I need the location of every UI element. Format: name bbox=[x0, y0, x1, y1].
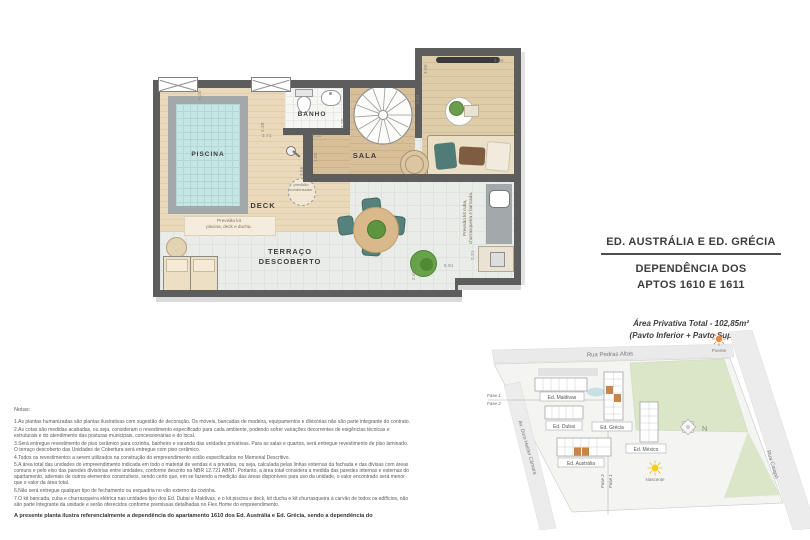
pillow-cream bbox=[485, 141, 511, 172]
phase-label: Fase 2 bbox=[600, 474, 605, 488]
building-dubai: Ed. Dubai bbox=[545, 406, 583, 430]
building-label: Ed. Maldivas bbox=[548, 395, 577, 401]
plan-shadow bbox=[521, 52, 525, 285]
compass-north: N bbox=[702, 424, 707, 433]
note-item: 6.Não será entregue qualquer tipo de fec… bbox=[14, 489, 412, 495]
plan-shadow bbox=[458, 285, 521, 290]
building-label: Ed. Austrália bbox=[567, 461, 595, 467]
dimension: 2.31 bbox=[470, 242, 475, 260]
compass-icon bbox=[680, 419, 696, 435]
notes-section: Notas: 1.As plantas humanizadas são plan… bbox=[14, 407, 412, 519]
magazine bbox=[464, 105, 479, 117]
pillow-teal bbox=[434, 142, 458, 170]
label-piscina: PISCINA bbox=[176, 151, 240, 160]
building-title: ED. AUSTRÁLIA E ED. GRÉCIA bbox=[601, 236, 781, 255]
phase-label: Fase 2 bbox=[487, 401, 501, 406]
dimension: 1.05 bbox=[313, 144, 318, 162]
building-label: Ed. México bbox=[634, 447, 659, 453]
lounger bbox=[163, 256, 191, 291]
site-plan: Rua Pedras Altas Av. Dom Helder Câmara R… bbox=[480, 330, 810, 530]
lounger-cushion bbox=[166, 259, 188, 272]
label-banho: BANHO bbox=[287, 111, 337, 120]
sun-west-icon bbox=[712, 332, 726, 346]
spiral-stair bbox=[352, 84, 414, 146]
unit-numbers: APTOS 1610 E 1611 bbox=[585, 279, 797, 291]
unit-subtitle: DEPENDÊNCIA DOS bbox=[585, 263, 797, 275]
label-terraco: TERRAÇO DESCOBERTO bbox=[222, 247, 358, 267]
private-area: Área Privativa Total - 102,85m² bbox=[585, 319, 797, 328]
lounger bbox=[190, 256, 218, 291]
dimension: 3.86 bbox=[299, 158, 304, 176]
phase-label: Fase 1 bbox=[487, 393, 501, 398]
sink bbox=[489, 190, 510, 208]
wall bbox=[303, 174, 423, 182]
note-item: 2.As cotas são medidas acabadas, ou seja… bbox=[14, 428, 412, 440]
dimension: 2.43 bbox=[415, 86, 420, 104]
dimension: 6.91 bbox=[444, 263, 454, 268]
shrub-detail bbox=[420, 258, 433, 271]
faucet bbox=[329, 92, 332, 95]
building-label: Ed. Grécia bbox=[600, 425, 624, 431]
curtain bbox=[436, 57, 500, 63]
notes-footer: A presente planta ilustra referencialmen… bbox=[14, 513, 412, 519]
dimension: 2.66 bbox=[411, 264, 416, 280]
wall bbox=[153, 80, 160, 297]
wall bbox=[415, 174, 521, 182]
dimension: 2.30 bbox=[260, 112, 265, 132]
sun-east-label: Nascente bbox=[645, 477, 665, 482]
lounge-side-table bbox=[166, 237, 187, 258]
sun-east-icon bbox=[648, 461, 663, 476]
floor-plan: previsão condensador Previsão kit piscin… bbox=[0, 0, 540, 340]
wall bbox=[514, 48, 521, 285]
wall bbox=[458, 278, 520, 285]
window bbox=[251, 77, 291, 92]
title-block: ED. AUSTRÁLIA E ED. GRÉCIA DEPENDÊNCIA D… bbox=[585, 232, 797, 340]
dimension: 6.20 bbox=[197, 80, 202, 100]
highlighted-unit bbox=[582, 448, 589, 456]
amenity-block bbox=[538, 368, 598, 376]
highlighted-unit bbox=[574, 448, 581, 456]
plan-shadow bbox=[156, 297, 462, 302]
label-deck: DECK bbox=[240, 201, 286, 211]
building-maldivas: Ed. Maldivas bbox=[535, 378, 587, 401]
building-australia: Ed. Austrália bbox=[557, 438, 611, 467]
highlighted-unit bbox=[614, 394, 621, 402]
grill bbox=[490, 252, 505, 267]
wall bbox=[303, 133, 313, 182]
notes-heading: Notas: bbox=[14, 407, 412, 413]
dimension: 3.00 bbox=[423, 58, 428, 74]
street-top-label: Rua Pedras Altas bbox=[587, 351, 634, 358]
lagoon bbox=[587, 388, 605, 397]
window bbox=[158, 77, 198, 92]
lounger-cushion bbox=[193, 259, 215, 272]
note-item: 7.O kit bancada, cuba e churrasqueira el… bbox=[14, 497, 412, 509]
highlighted-unit bbox=[606, 386, 613, 394]
note-item: 3.Será entregue revestimento de piso cer… bbox=[14, 442, 412, 454]
phase-label: Fase 1 bbox=[608, 474, 613, 488]
pouf-inner bbox=[405, 155, 424, 174]
note-item: 4.Todos os revestimentos a serem utiliza… bbox=[14, 456, 412, 462]
dimension: 3.71 bbox=[262, 133, 272, 138]
sun-west-label: Poente bbox=[712, 348, 727, 353]
condenser-label: previsão condensador bbox=[284, 183, 318, 192]
plant-pot bbox=[449, 101, 464, 116]
wall bbox=[153, 290, 465, 297]
note-item: 5.A área total das unidades do empreendi… bbox=[14, 463, 412, 487]
note-item: 1.As plantas humanizadas são plantas ilu… bbox=[14, 420, 412, 426]
dimension: 5.10 bbox=[312, 133, 322, 138]
table-plant bbox=[367, 220, 386, 239]
dimension: 1.20 bbox=[340, 110, 345, 128]
label-sala: SALA bbox=[338, 151, 392, 161]
kit-piscina-label: Previsão kit piscina, deck e ducha. bbox=[184, 218, 274, 229]
pillow-brown bbox=[459, 146, 486, 165]
wall bbox=[415, 48, 521, 56]
building-label: Ed. Dubai bbox=[553, 424, 575, 430]
dimension: 2.30 bbox=[494, 58, 504, 63]
